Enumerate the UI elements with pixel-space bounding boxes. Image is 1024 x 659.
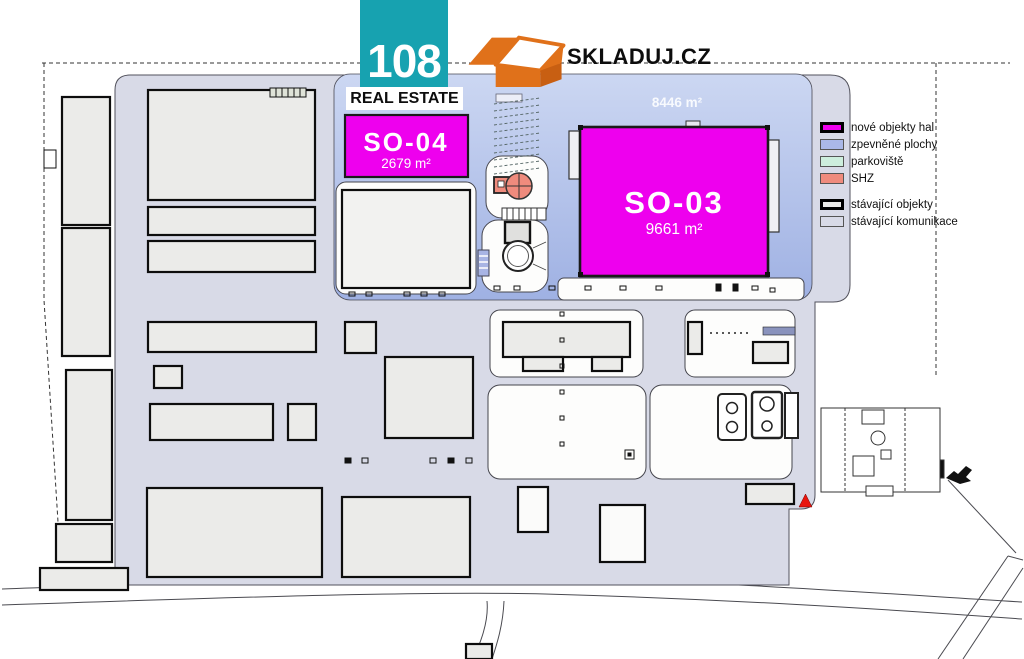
legend-swatch-paved bbox=[820, 139, 844, 150]
logo-108-subtitle-band: REAL ESTATE bbox=[346, 87, 463, 110]
so04-area: 2679 m² bbox=[381, 156, 431, 171]
legend-item-existing-roads: stávající komunikace bbox=[820, 214, 1020, 229]
hall-so04: SO-04 2679 m² bbox=[345, 115, 468, 177]
so03-name: SO-03 bbox=[624, 185, 724, 220]
skladuj-logo-text: SKLADUJ.CZ bbox=[567, 44, 711, 70]
legend: nové objekty hal zpevněné plochy parkovi… bbox=[820, 120, 1020, 231]
legend-swatch-existing-roads bbox=[820, 216, 844, 227]
site-plan-svg: SO-04 2679 m² SO-03 9661 m² 8446 m² bbox=[0, 0, 1024, 659]
skladuj-box-icon bbox=[467, 26, 567, 88]
legend-swatch-shz bbox=[820, 173, 844, 184]
legend-swatch-new-halls bbox=[820, 122, 844, 133]
legend-item-new-halls: nové objekty hal bbox=[820, 120, 1020, 135]
logo-108-number: 108 bbox=[367, 38, 441, 87]
hall-so03: SO-03 9661 m² bbox=[569, 121, 779, 277]
legend-swatch-existing-buildings bbox=[820, 199, 844, 210]
blue-slab bbox=[763, 327, 795, 335]
tank-structures bbox=[718, 392, 798, 440]
legend-item-parking: parkoviště bbox=[820, 154, 1020, 169]
logo-108-subtitle: REAL ESTATE bbox=[350, 90, 458, 108]
logo-108: 108 bbox=[360, 0, 448, 87]
legend-item-paved: zpevněné plochy bbox=[820, 137, 1020, 152]
legend-item-existing-buildings: stávající objekty bbox=[820, 197, 1020, 212]
legend-item-shz: SHZ bbox=[820, 171, 1020, 186]
so04-name: SO-04 bbox=[363, 127, 448, 157]
legend-swatch-parking bbox=[820, 156, 844, 167]
so03-area: 9661 m² bbox=[646, 221, 703, 238]
paved-area-label: 8446 m² bbox=[652, 95, 703, 110]
